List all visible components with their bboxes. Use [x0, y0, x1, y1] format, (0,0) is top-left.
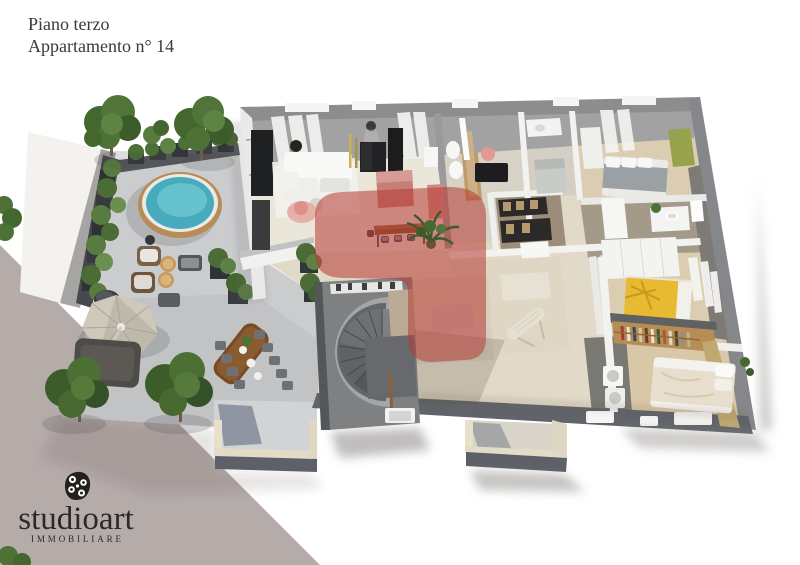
svg-text:Appartamento n° 14: Appartamento n° 14 — [28, 36, 174, 56]
svg-text:studioart: studioart — [18, 501, 133, 537]
svg-text:Piano terzo: Piano terzo — [28, 14, 109, 34]
svg-text:IMMOBILIARE: IMMOBILIARE — [31, 534, 124, 544]
